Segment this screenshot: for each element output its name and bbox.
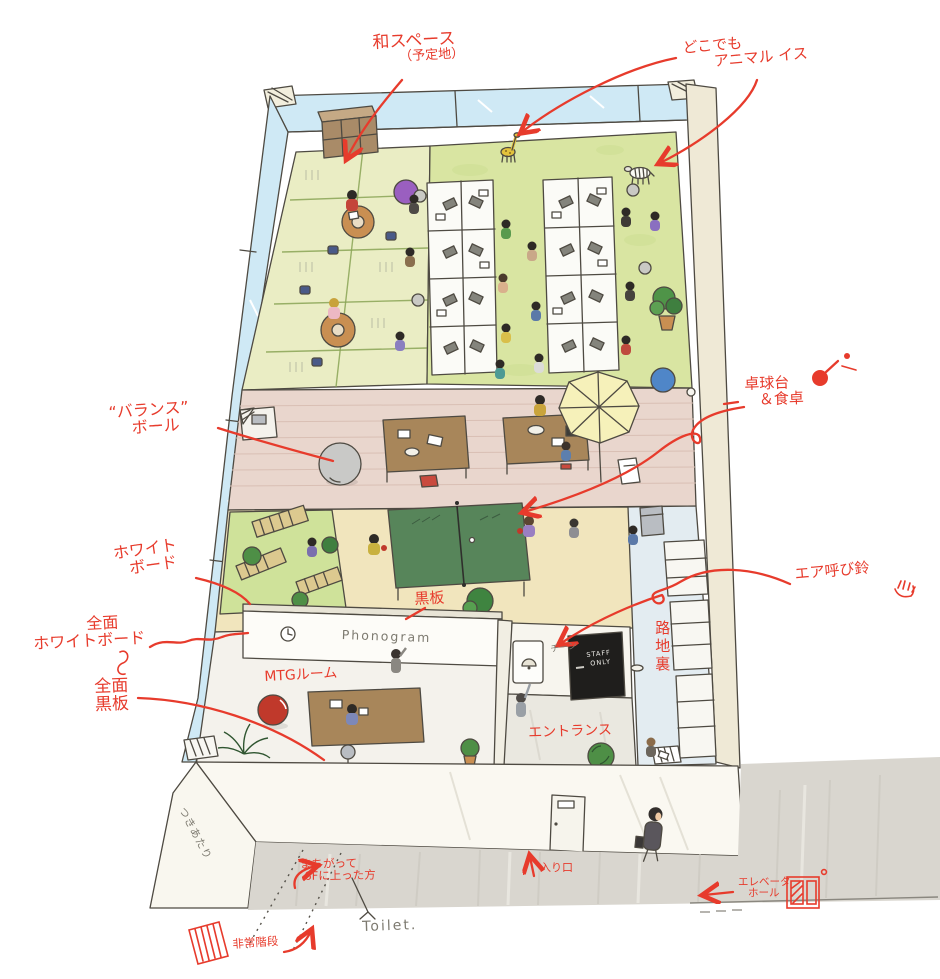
person — [395, 332, 405, 352]
person — [534, 395, 546, 416]
label-entrance: エントランス — [528, 723, 612, 741]
person — [534, 354, 544, 374]
gray-balance-ball — [319, 443, 361, 486]
floorplan-illustration: 和スペース （予定地） どこでも アニマル イス “バランス” ボール 卓球台 … — [0, 0, 940, 979]
person — [409, 195, 419, 215]
person — [501, 220, 511, 240]
label-line: 黒板 — [95, 695, 130, 715]
label-line: ＆食卓 — [759, 390, 805, 408]
ping-pong-paddle-icon — [812, 353, 856, 386]
low-round-table — [342, 206, 374, 238]
label-phonogram: Phonogram — [342, 628, 432, 645]
person — [328, 298, 340, 319]
bookshelf — [318, 106, 378, 158]
person — [495, 360, 505, 380]
person — [498, 274, 508, 294]
doorbell-panel — [513, 641, 543, 683]
clock-icon — [281, 627, 295, 641]
hand-icon — [895, 581, 915, 597]
person — [650, 212, 660, 232]
label-wrong-floor: まちがって 6Fに上った方 — [300, 857, 376, 883]
exterior-door — [550, 795, 585, 852]
copier — [640, 506, 664, 536]
label-elevator-hall: エレベータ ホール — [738, 877, 791, 900]
person — [527, 242, 537, 262]
printer-stand — [240, 407, 277, 440]
label-pingpong-dining: 卓球台 ＆食卓 — [744, 374, 804, 408]
garden-corner — [220, 505, 346, 614]
person — [307, 538, 317, 558]
small-ball — [687, 388, 695, 396]
person — [621, 208, 631, 228]
meeting-table — [308, 688, 424, 746]
label-wa-space: 和スペース （予定地） — [372, 29, 465, 66]
person — [621, 336, 631, 356]
full-whiteboard-curl — [118, 651, 128, 674]
label-line: ホール — [748, 888, 791, 899]
person — [405, 248, 415, 268]
person — [501, 324, 511, 344]
label-line: 6Fに上った方 — [304, 869, 376, 883]
person — [625, 282, 635, 302]
desk-cluster — [427, 180, 497, 375]
label-full-whiteboard: 全面 ホワイトボード — [32, 612, 146, 652]
person — [569, 519, 579, 539]
stairs-icon — [189, 922, 228, 964]
label-blackboard: 黒板 — [414, 589, 445, 607]
label-emergency-stairs: 非常階段 — [232, 935, 279, 951]
label-staff-only: STAFF ONLY — [586, 648, 612, 669]
person — [531, 302, 541, 322]
floorplan-drawing — [0, 0, 940, 979]
person — [346, 190, 358, 211]
blue-balance-ball — [651, 368, 675, 392]
exterior-wall — [196, 762, 744, 856]
desk-cluster — [543, 177, 619, 373]
label-toilet: Toilet. — [362, 918, 418, 935]
label-back-alley: 路地裏 — [654, 620, 670, 674]
label-entry: 入り口 — [540, 862, 573, 874]
person — [628, 526, 638, 546]
label-balance-ball: “バランス” ボール — [108, 398, 190, 438]
label-full-blackboard: 全面 黒板 — [94, 677, 129, 715]
person — [561, 442, 571, 470]
